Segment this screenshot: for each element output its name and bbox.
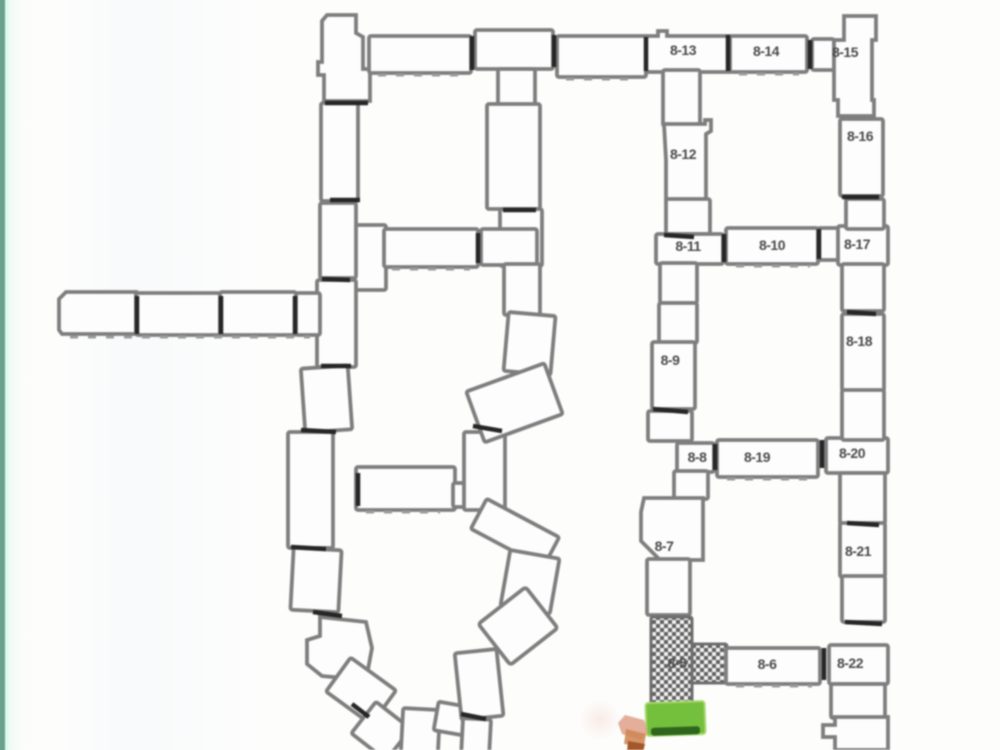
svg-text:8-15: 8-15 — [832, 44, 859, 60]
svg-text:8-20: 8-20 — [839, 445, 866, 461]
svg-text:8-8: 8-8 — [688, 449, 707, 465]
svg-text:8-16: 8-16 — [847, 128, 874, 144]
svg-text:8-13: 8-13 — [670, 42, 697, 58]
svg-text:8-9: 8-9 — [661, 352, 680, 368]
svg-text:8-18: 8-18 — [846, 333, 873, 349]
svg-text:8-19: 8-19 — [744, 449, 771, 465]
svg-text:8-14: 8-14 — [753, 43, 780, 59]
svg-text:8-12: 8-12 — [670, 146, 697, 162]
svg-text:8-6: 8-6 — [758, 656, 777, 672]
svg-text:8-11: 8-11 — [675, 238, 701, 254]
svg-text:8-5: 8-5 — [668, 655, 687, 671]
svg-text:8-22: 8-22 — [837, 655, 864, 671]
svg-text:8-21: 8-21 — [845, 543, 872, 559]
svg-text:8-7: 8-7 — [655, 538, 674, 554]
svg-text:8-17: 8-17 — [844, 236, 871, 252]
svg-text:8-10: 8-10 — [759, 237, 786, 253]
